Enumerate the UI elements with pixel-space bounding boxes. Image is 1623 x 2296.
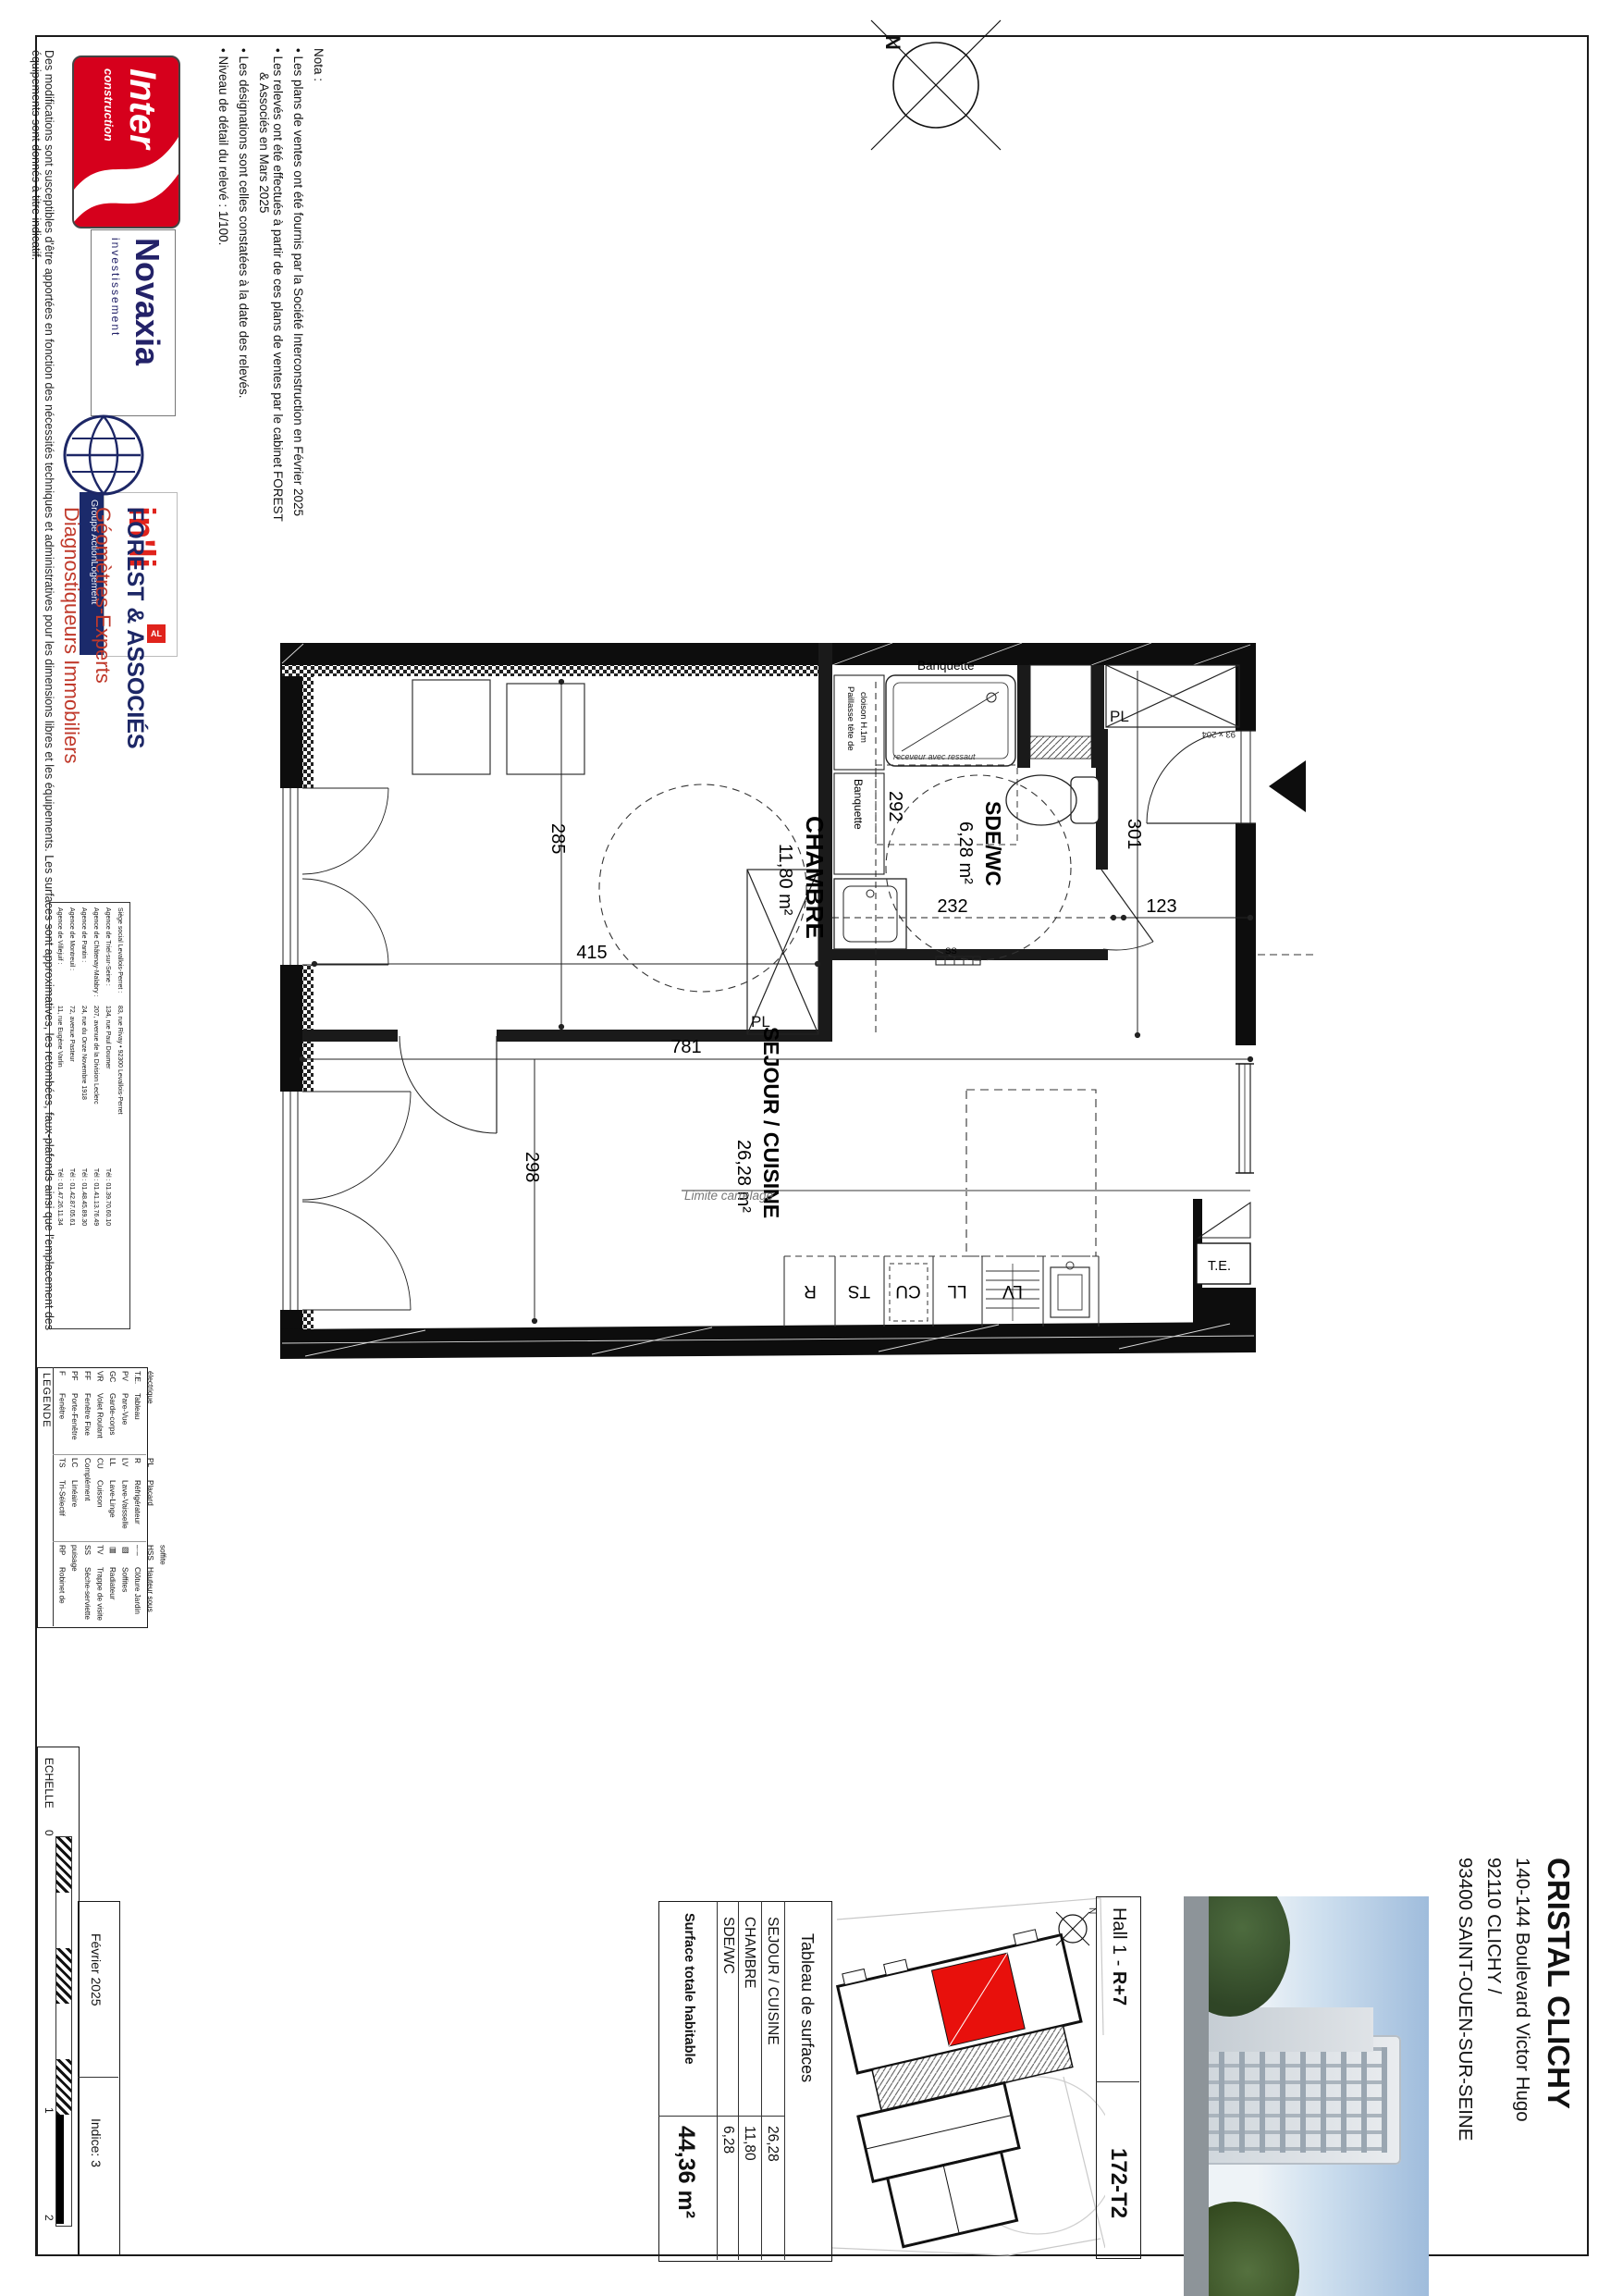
legend-name: Fenêtre Fixe	[83, 1393, 92, 1436]
novaxia-logo-text: Novaxia	[125, 238, 169, 410]
room-sde-area: 6,28 m²	[955, 821, 976, 884]
agency-tel: Tél : 01.42.87.05.61	[68, 1168, 75, 1226]
label-banquette-top: Banquette	[917, 659, 975, 673]
dim-781: 781	[670, 1037, 701, 1057]
scale-tick-1: 1	[43, 2107, 55, 2114]
agency-name: Siège social Levallois-Perret :	[114, 907, 126, 1004]
legend-name: Tri-Sélectif	[58, 1480, 67, 1516]
insulation-strips	[282, 665, 821, 1329]
legend-name: Porte-Fenêtre	[70, 1393, 79, 1440]
surface-table-line	[784, 1901, 785, 2260]
floor-plan: PL 93 x 204 PL	[259, 629, 1322, 1369]
washbasin	[834, 879, 906, 949]
legend-name: Volet Roulant	[95, 1393, 104, 1438]
room-sde: SDE/WC	[981, 801, 1005, 886]
agency-address: 134, rue Paul Doumer	[102, 1006, 114, 1167]
radiator	[1236, 1064, 1254, 1173]
project-address-3: 93400 SAINT-OUEN-SUR-SEINE	[1451, 1858, 1480, 2276]
scale-tick-0: 0	[43, 1830, 55, 1836]
dim-292: 292	[885, 791, 905, 821]
surface-row-value: 6,28	[720, 2126, 736, 2246]
agency-tel: Tél : 01.48.45.89.30	[80, 1168, 87, 1226]
legend-abbr: R	[131, 1458, 144, 1480]
legend-name: Pare-Vue	[121, 1393, 129, 1425]
legend-abbr: PF	[68, 1371, 81, 1393]
forest-name: FOREST & ASSOCIÉS	[118, 507, 152, 905]
key-plan-compass: N	[1056, 1907, 1097, 1945]
legend-name: Fenêtre	[58, 1393, 67, 1419]
hall-label: Hall 1 - R+7	[1107, 1907, 1129, 2079]
surface-total-name: Surface totale habitable	[681, 1913, 696, 2112]
agency-address: 24, rue du Onze Novembre 1918	[78, 1006, 90, 1167]
forest-spec-1: Géomètres-Experts	[87, 507, 118, 905]
novaxia-logo-subtext: investissement	[106, 238, 125, 410]
key-plan: N	[828, 1895, 1105, 2257]
toilet	[1006, 775, 1099, 825]
entry-door-size: 93 x 204	[1202, 729, 1236, 739]
hall-level: R+7	[1109, 1971, 1129, 2006]
appliance-ts: TS	[848, 1281, 870, 1301]
unit-number: 172-T2	[1103, 2148, 1131, 2254]
surface-table-line	[717, 1901, 718, 2260]
legend-symbol-radiateur: ▤	[105, 1545, 118, 1567]
forest-block: FOREST & ASSOCIÉS Géomètres-Experts Diag…	[48, 507, 152, 905]
entrance-arrow	[1269, 760, 1306, 812]
legend-name: Garde-corps	[108, 1393, 117, 1436]
legend-symbol-cloture: –·–	[131, 1545, 144, 1567]
agency-name: Agence de Villejuif :	[54, 907, 66, 1004]
issue-indice: Indice: 3	[89, 2118, 104, 2248]
room-chambre-area: 11,80 m²	[775, 844, 795, 916]
inter-logo-subtext: construction	[98, 68, 118, 216]
legend-name: Trappe de visite	[95, 1567, 104, 1621]
surface-table-line	[738, 1901, 739, 2260]
agency-address: 11, rue Eugène Varlin	[54, 1006, 66, 1167]
title-block: CRISTAL CLICHY 140-144 Boulevard Victor …	[1439, 1858, 1580, 2276]
dim-285: 285	[547, 823, 568, 854]
north-label: N	[881, 35, 904, 50]
scale-tick-2: 2	[43, 2215, 55, 2221]
surface-row-name: SEJOUR / CUISINE	[765, 1917, 781, 2111]
legend-name: Lave-Linge	[108, 1480, 117, 1518]
chambre-door	[400, 1036, 497, 1133]
dim-301: 301	[1124, 819, 1144, 849]
building-photo	[1184, 1896, 1429, 2296]
novaxia-logo: Novaxia investissement	[91, 229, 176, 416]
legend-abbr: HSS	[143, 1545, 156, 1567]
legend-abbr: SS	[80, 1545, 93, 1567]
issue-date: Février 2025	[89, 1933, 104, 2072]
surface-table-title: Tableau de surfaces	[798, 1933, 817, 2248]
dim-298: 298	[522, 1152, 542, 1182]
legend-abbr: LL	[105, 1458, 118, 1480]
agency-address: 83, rue Rivay • 92300 Levallois-Perret	[114, 1006, 126, 1167]
forest-spec-2: Diagnostiqueurs Immobiliers	[55, 507, 87, 905]
entry-door	[1147, 731, 1256, 823]
surface-row-value: 26,28	[765, 2126, 781, 2246]
legend-symbol-soffites: ▨	[118, 1545, 131, 1567]
unit-box-divider	[1096, 2081, 1139, 2082]
agency-address: 207, avenue de la Division Leclerc	[90, 1006, 102, 1167]
shaft-hatch	[1030, 736, 1091, 759]
agency-name: Agence de Pantin :	[78, 907, 90, 1004]
nota-bullet-4: • Niveau de détail du relevé : 1/100.	[216, 48, 230, 733]
legend-name: Cuisson	[95, 1480, 104, 1508]
appliance-cu: CU	[895, 1281, 920, 1301]
appliance-ll: LL	[947, 1281, 966, 1301]
dim-123: 123	[1146, 896, 1176, 917]
legend-name: Radiateur	[108, 1567, 117, 1600]
appliance-r: R	[804, 1281, 817, 1301]
label-banquette-side: Banquette	[852, 779, 865, 830]
legend-name: Soffites	[121, 1567, 129, 1592]
legend-abbr: T.E.	[131, 1371, 144, 1393]
chambre-furniture	[412, 680, 584, 774]
interconstruction-logo: Inter construction	[72, 56, 180, 228]
label-te: T.E.	[1208, 1259, 1231, 1274]
legend-abbr: FF	[80, 1371, 93, 1393]
label-limite-carrelage: Limite carrelage	[684, 1189, 773, 1203]
legend-abbr: TV	[93, 1545, 106, 1567]
agency-name: Agence de Triel-sur-Seine :	[102, 907, 114, 1004]
legend-group-2: TSTri-Sélectif LCLinéaire Complément CUC…	[55, 1458, 145, 1537]
legend-abbr: GC	[105, 1371, 118, 1393]
dim-232: 232	[937, 896, 967, 917]
legend-name: Sèche-serviette	[83, 1567, 92, 1620]
legend-name: Clôture Jardin	[133, 1567, 141, 1614]
surface-table-line	[761, 1901, 762, 2260]
surface-row-value: 11,80	[742, 2126, 757, 2246]
legend-divider	[53, 1367, 54, 1626]
legend-abbr: LV	[118, 1458, 131, 1480]
kitchen-zone	[966, 1090, 1096, 1256]
legend-abbr: TS	[55, 1458, 68, 1480]
legend-group-1: FFenêtre PFPorte-Fenêtre FFFenêtre Fixe …	[55, 1371, 145, 1452]
date-box-divider	[78, 2077, 118, 2078]
nota-bullet-3: • Les désignations sont celles constatée…	[237, 48, 251, 733]
forest-agencies-box: Siège social Levallois-Perret : 83, rue …	[49, 902, 130, 1329]
surface-total-value: 44,36 m²	[671, 2126, 699, 2251]
key-plan-building	[828, 1924, 1105, 2250]
entry-closet-label: PL	[1110, 708, 1129, 725]
exterior-walls	[280, 643, 1256, 1359]
te-door-flag	[1199, 1203, 1250, 1238]
window-sejour	[280, 1092, 411, 1310]
legend-abbr: F	[55, 1371, 68, 1393]
agency-name: Agence de Montreuil :	[66, 907, 78, 1004]
north-compass: N	[860, 11, 1017, 168]
surface-table-line	[658, 2116, 784, 2117]
legend-abbr: VR	[93, 1371, 106, 1393]
room-chambre: CHAMBRE	[801, 816, 829, 939]
agency-tel: Tél : 01.41.13.76.49	[92, 1168, 99, 1226]
project-address-1: 140-144 Boulevard Victor Hugo	[1508, 1858, 1537, 2276]
hall-prefix: Hall 1 -	[1109, 1907, 1129, 1971]
forest-logo	[59, 411, 148, 500]
legend-abbr: PV	[118, 1371, 131, 1393]
project-address-2: 92110 CLICHY /	[1480, 1858, 1508, 2276]
legend-name: Lave-Vaisselle	[121, 1480, 129, 1529]
legend-title: LEGENDE	[40, 1373, 52, 1447]
legend-group-3: RPRobinet de puisage SSSèche-serviette T…	[55, 1545, 145, 1624]
legend-band-divider	[53, 1454, 146, 1455]
dimension-lines	[300, 671, 1252, 1324]
appliance-lv: LV	[1002, 1281, 1023, 1301]
inter-logo-text: Inter	[118, 68, 166, 216]
label-ss: SS	[945, 946, 957, 957]
surface-row-name: SDE/WC	[720, 1917, 736, 2111]
agency-tel: Tél : 01.47.26.11.34	[56, 1168, 63, 1226]
label-paillasse-2: cloison H.1m	[858, 692, 868, 743]
agency-tel: Tél : 01.39.70.60.10	[105, 1168, 111, 1226]
agency-address: 72, avenue Pasteur	[66, 1006, 78, 1167]
surface-row-name: CHAMBRE	[742, 1917, 757, 2111]
window-chambre	[280, 788, 388, 965]
building-photo-image	[1184, 1896, 1429, 2296]
legend-abbr: RP	[55, 1545, 68, 1567]
scale-bar	[55, 1836, 72, 2227]
legend-abbr: LC	[68, 1458, 81, 1480]
legend-band-divider	[53, 1541, 146, 1542]
legend-name: Réfrigérateur	[133, 1480, 141, 1524]
dim-415: 415	[576, 943, 607, 963]
label-receveur: receveur avec ressaut	[893, 752, 976, 761]
scale-label: ECHELLE	[43, 1758, 55, 1841]
legend-name: Placard	[146, 1480, 154, 1506]
legend-abbr: CU	[93, 1458, 106, 1480]
legend-abbr: PL	[143, 1458, 156, 1480]
agency-name: Agence de Châtenay-Malabry :	[90, 907, 102, 1004]
label-paillasse-1: Paillasse tête de	[845, 686, 855, 751]
appliance-row	[784, 1256, 1099, 1327]
project-title: CRISTAL CLICHY	[1537, 1858, 1580, 2276]
